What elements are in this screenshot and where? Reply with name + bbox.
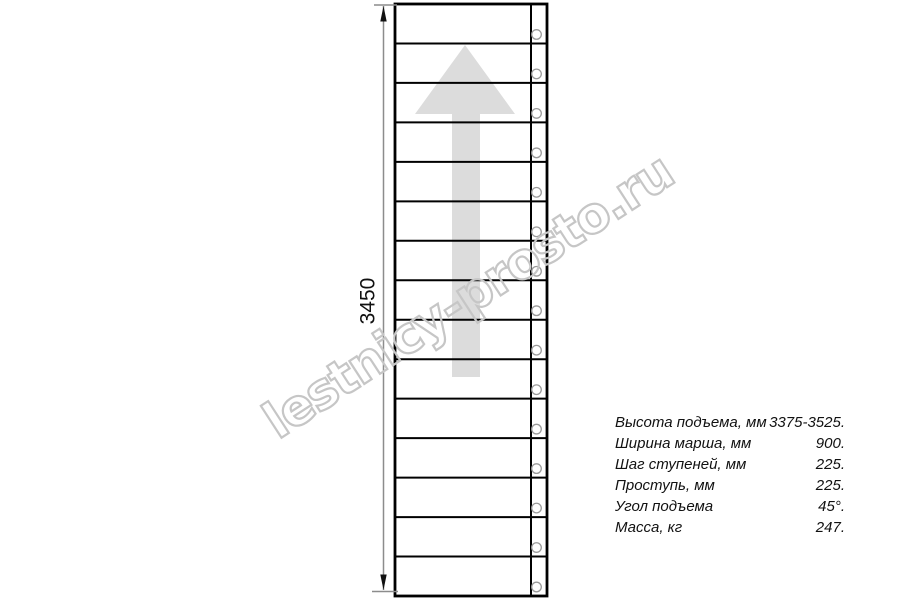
spec-row: Угол подъема 45°. [615,496,845,517]
spec-label: Ширина марша, мм [615,433,751,454]
dimension: 3450 [357,5,399,592]
tread-screw-circle [532,503,542,513]
tread-screw-circle [532,543,542,553]
tread-screw-circle [532,30,542,40]
specs-table: Высота подъема, мм 3375-3525. Ширина мар… [615,412,845,538]
tread-screw-circle [532,188,542,198]
spec-row: Высота подъема, мм 3375-3525. [615,412,845,433]
spec-row: Шаг ступеней, мм 225. [615,454,845,475]
tread-screw-circle [532,69,542,79]
spec-value: 225. [816,475,845,496]
tread-screw-circle [532,109,542,119]
spec-label: Проступь, мм [615,475,715,496]
stair-drawing-page: 3450 lestnicy-prosto.ru Высота подъема, … [0,0,900,600]
dimension-label: 3450 [357,278,380,325]
spec-label: Масса, кг [615,517,682,538]
spec-value: 900. [816,433,845,454]
spec-value: 247. [816,517,845,538]
screw-circles [532,30,542,592]
tread-screw-circle [532,306,542,316]
tread-screw-circle [532,424,542,434]
spec-label: Шаг ступеней, мм [615,454,746,475]
spec-row: Проступь, мм 225. [615,475,845,496]
dimension-arrowhead-top [380,6,386,22]
dimension-arrowhead-bottom [380,575,386,591]
tread-screw-circle [532,385,542,395]
spec-row: Масса, кг 247. [615,517,845,538]
spec-value: 45°. [818,496,845,517]
spec-value: 3375-3525. [769,412,845,433]
spec-value: 225. [816,454,845,475]
tread-screw-circle [532,148,542,158]
tread-screw-circle [532,582,542,592]
spec-label: Высота подъема, мм [615,412,767,433]
spec-label: Угол подъема [615,496,713,517]
tread-screw-circle [532,345,542,355]
tread-screw-circle [532,464,542,474]
spec-row: Ширина марша, мм 900. [615,433,845,454]
